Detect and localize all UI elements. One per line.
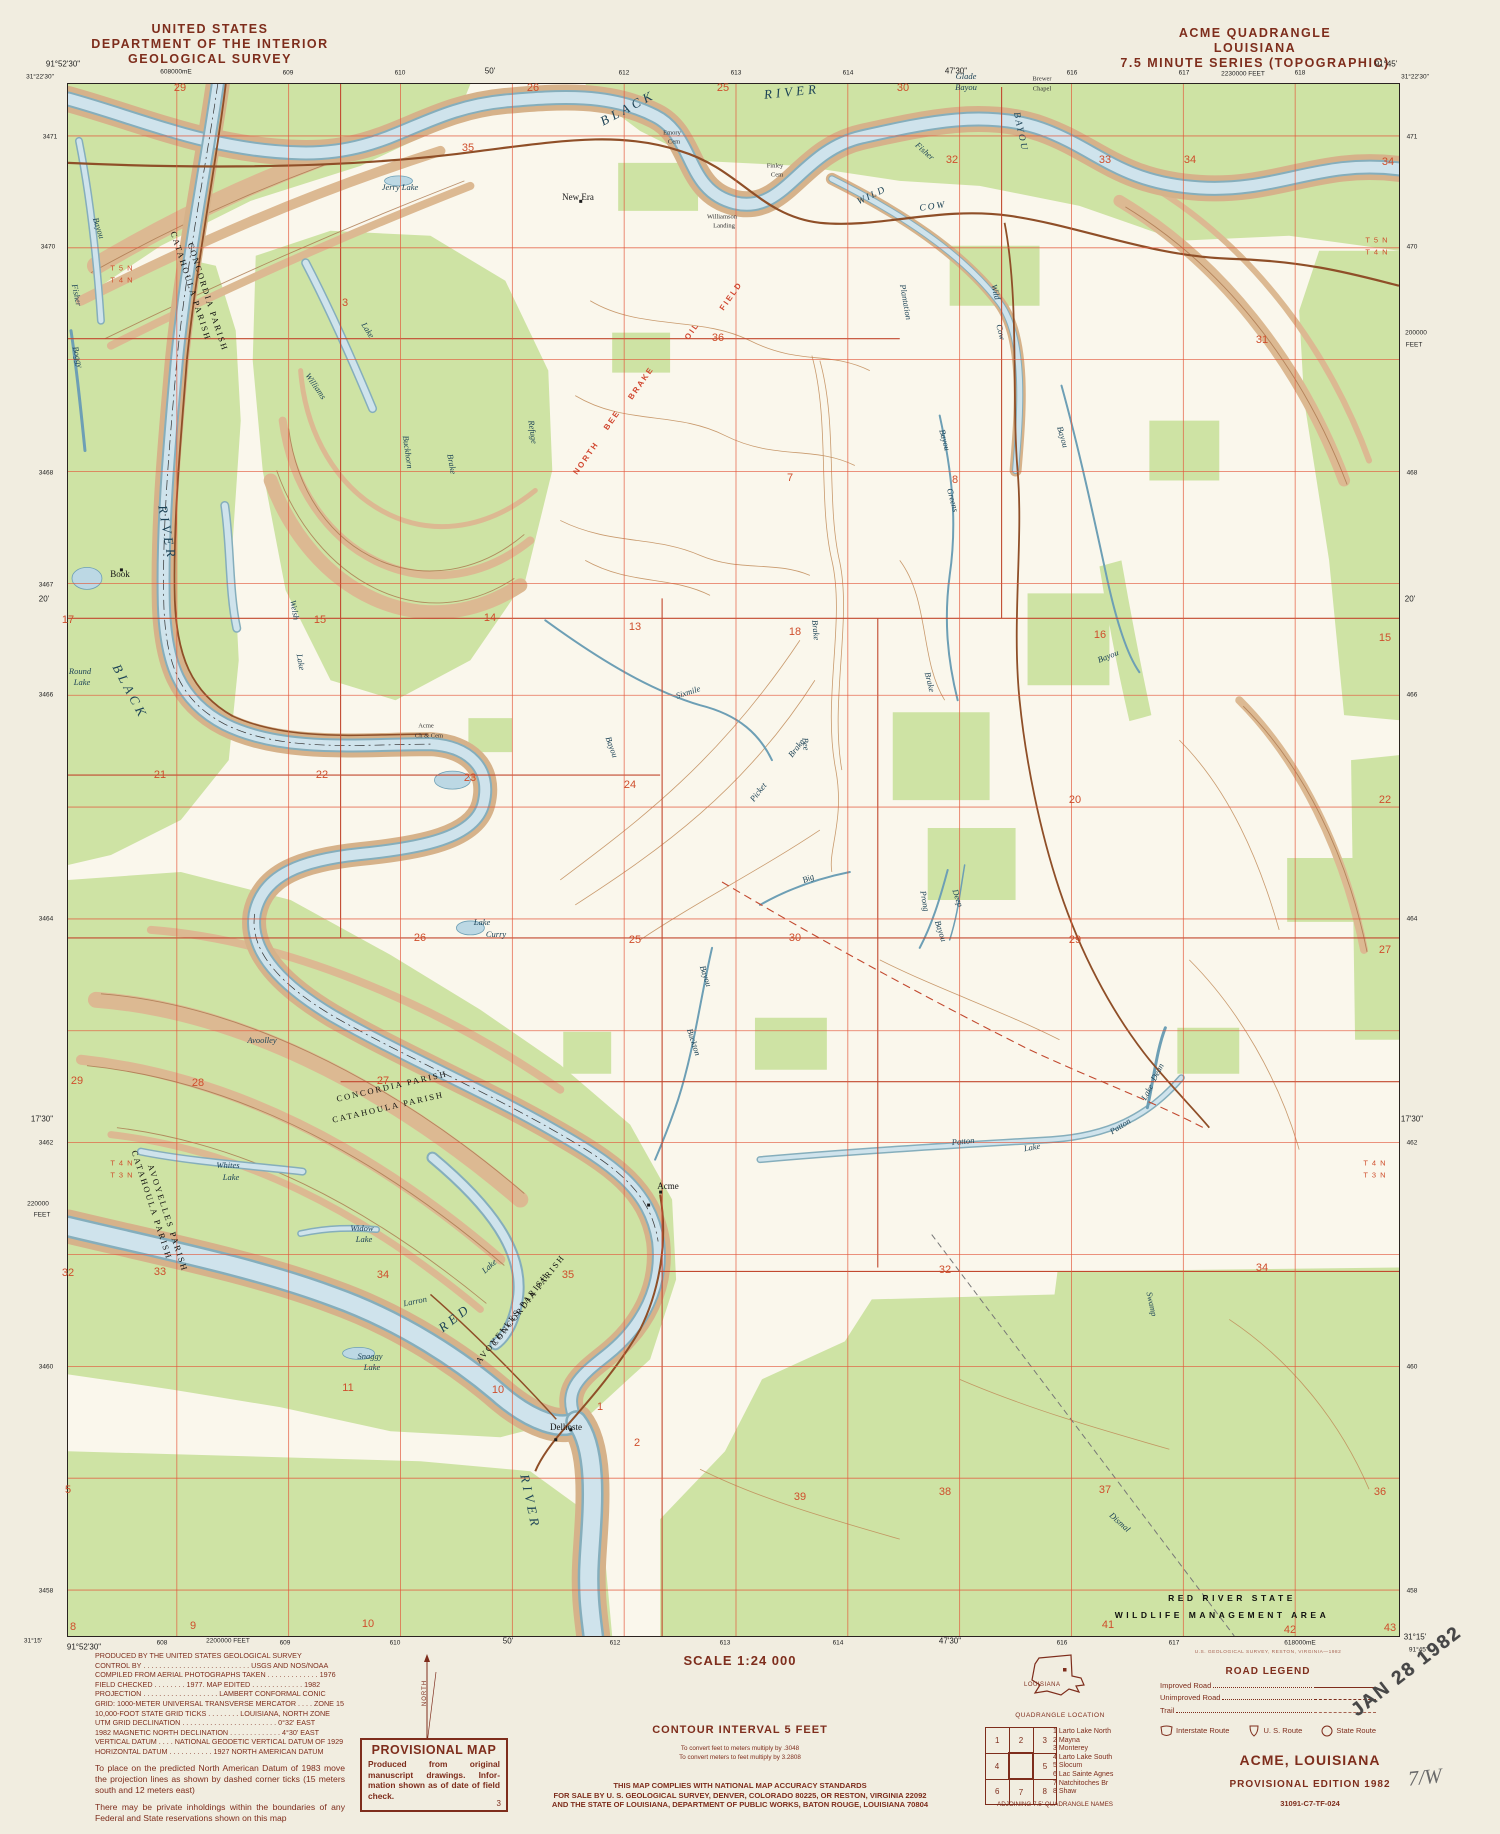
road-type-label: Unimproved Road xyxy=(1160,1693,1220,1702)
agency-header: UNITED STATES DEPARTMENT OF THE INTERIOR… xyxy=(60,22,360,67)
map-label: 17'30" xyxy=(1401,1115,1423,1124)
map-label: 610 xyxy=(395,70,406,77)
north-label: NORTH xyxy=(422,1680,428,1706)
provisional-title: PROVISIONAL MAP xyxy=(368,1743,500,1757)
map-label: 31°22'30" xyxy=(1401,74,1429,81)
map-label: Glade xyxy=(956,71,977,81)
text-line: 8 Shaw xyxy=(1053,1788,1173,1797)
quad-location-dot xyxy=(1063,1668,1067,1672)
conversion-note: To convert feet to meters multiply by .3… xyxy=(440,1745,1040,1752)
text-line: PROJECTION . . . . . . . . . . . . . . .… xyxy=(95,1689,345,1699)
map-label: 608 xyxy=(157,1640,168,1647)
provisional-body: Produced from original manuscript drawin… xyxy=(368,1759,500,1801)
map-label: 613 xyxy=(731,70,742,77)
map-label: 618000mE xyxy=(1284,1640,1315,1647)
adjoining-names: 1 Larto Lake North2 Mayna3 Monterey4 Lar… xyxy=(1053,1728,1173,1797)
agency-line: DEPARTMENT OF THE INTERIOR xyxy=(60,37,360,52)
text-line: 1 Larto Lake North xyxy=(1053,1728,1173,1737)
topo-map: .grn{fill:#cee3a4;stroke:none} .tan{fill… xyxy=(67,83,1400,1637)
road-legend: U.S. GEOLOGICAL SURVEY, RESTON, VIRGINIA… xyxy=(1160,1650,1376,1737)
map-label: 3464 xyxy=(39,916,53,923)
map-label: 3462 xyxy=(39,1140,53,1147)
map-label: 50' xyxy=(503,1637,513,1646)
map-label: 608000mE xyxy=(160,69,191,76)
map-label: 470 xyxy=(1407,244,1418,251)
text-line: 10,000-FOOT STATE GRID TICKS . . . . . .… xyxy=(95,1709,345,1719)
map-label: 3470 xyxy=(41,244,55,251)
agency-line: UNITED STATES xyxy=(60,22,360,37)
accuracy-note: THIS MAP COMPLIES WITH NATIONAL MAP ACCU… xyxy=(440,1781,1040,1790)
route-label: Interstate Route xyxy=(1176,1726,1229,1735)
map-label: 610 xyxy=(390,1640,401,1647)
provisional-map-box: PROVISIONAL MAP Produced from original m… xyxy=(360,1738,508,1812)
map-graphic: .grn{fill:#cee3a4;stroke:none} .tan{fill… xyxy=(68,84,1399,1636)
print-attribution: U.S. GEOLOGICAL SURVEY, RESTON, VIRGINIA… xyxy=(1160,1650,1376,1655)
map-label: 31°15' xyxy=(1404,1633,1427,1642)
text-line: VERTICAL DATUM . . . . NATIONAL GEODETIC… xyxy=(95,1737,345,1747)
us-route-shield-icon xyxy=(1248,1725,1260,1737)
agency-line: GEOLOGICAL SURVEY xyxy=(60,52,360,67)
text-line: 1982 MAGNETIC NORTH DECLINATION . . . . … xyxy=(95,1728,345,1738)
text-line: PRODUCED BY THE UNITED STATES GEOLOGICAL… xyxy=(95,1651,345,1661)
page-number: 3 xyxy=(497,1799,501,1808)
map-label: 3466 xyxy=(39,692,53,699)
text-line: UTM GRID DECLINATION . . . . . . . . . .… xyxy=(95,1718,345,1728)
map-label: 3458 xyxy=(39,1588,53,1595)
credit-lines: PRODUCED BY THE UNITED STATES GEOLOGICAL… xyxy=(95,1651,345,1757)
adjoin-cell-center xyxy=(1009,1753,1033,1779)
text-line: 5 Slocum xyxy=(1053,1762,1173,1771)
adjoining-caption: ADJOINING 7.5' QUADRANGLE NAMES xyxy=(965,1801,1145,1808)
adjoining-quads: 123 45 678 1 Larto Lake North2 Mayna3 Mo… xyxy=(985,1727,1057,1805)
map-label: 31°15' xyxy=(24,1638,42,1645)
route-label: State Route xyxy=(1336,1726,1376,1735)
quad-title: ACME QUADRANGLE xyxy=(1070,26,1440,41)
text-line: GRID: 1000-METER UNIVERSAL TRANSVERSE ME… xyxy=(95,1699,345,1709)
map-label: Brewer xyxy=(1032,76,1051,83)
map-label: 612 xyxy=(610,1640,621,1647)
map-label: 3460 xyxy=(39,1364,53,1371)
text-line: 4 Larto Lake South xyxy=(1053,1754,1173,1763)
route-label: U. S. Route xyxy=(1263,1726,1302,1735)
road-type-label: Improved Road xyxy=(1160,1681,1211,1690)
map-label: 20' xyxy=(39,595,49,604)
map-label: 200000 xyxy=(1405,330,1427,337)
quadrangle-location: LOUISIANA QUADRANGLE LOCATION xyxy=(1010,1650,1110,1713)
production-credits: PRODUCED BY THE UNITED STATES GEOLOGICAL… xyxy=(95,1651,345,1824)
map-label: 2230000 FEET xyxy=(1221,71,1265,78)
map-label: 614 xyxy=(833,1640,844,1647)
map-label: 3467 xyxy=(39,582,53,589)
state-name: LOUISIANA xyxy=(1024,1682,1061,1688)
quad-state: LOUISIANA xyxy=(1070,41,1440,56)
map-label: 613 xyxy=(720,1640,731,1647)
map-label: 31°22'30" xyxy=(26,74,54,81)
text-line: FIELD CHECKED . . . . . . . . 1977. MAP … xyxy=(95,1680,345,1690)
map-label: 462 xyxy=(1407,1140,1418,1147)
map-label: 20' xyxy=(1405,595,1415,604)
map-label: FEET xyxy=(1406,342,1423,349)
map-label: 47'30" xyxy=(939,1637,961,1646)
map-label: 17'30" xyxy=(31,1115,53,1124)
map-label: 612 xyxy=(619,70,630,77)
datum-note: To place on the predicted North American… xyxy=(95,1763,345,1796)
conversion-note: To convert meters to feet multiply by 3.… xyxy=(440,1754,1040,1761)
improved-road-sample xyxy=(1314,1687,1376,1688)
road-type-label: Trail xyxy=(1160,1706,1174,1715)
contour-interval: CONTOUR INTERVAL 5 FEET xyxy=(440,1724,1040,1736)
map-label: 468 xyxy=(1407,470,1418,477)
adjoin-cell: 4 xyxy=(986,1753,1010,1779)
map-label: 609 xyxy=(283,70,294,77)
map-label: 2200000 FEET xyxy=(206,1638,250,1645)
state-route-circle-icon xyxy=(1321,1725,1333,1737)
sale-note: AND THE STATE OF LOUISIANA, DEPARTMENT O… xyxy=(440,1800,1040,1809)
map-label: 617 xyxy=(1169,1640,1180,1647)
adjoin-cell: 2 xyxy=(1009,1728,1033,1754)
louisiana-outline xyxy=(1027,1650,1097,1708)
text-line: HORIZONTAL DATUM . . . . . . . . . . . 1… xyxy=(95,1747,345,1757)
map-label: 614 xyxy=(843,70,854,77)
adjoin-cell: 1 xyxy=(986,1728,1010,1754)
text-line: 2 Mayna xyxy=(1053,1737,1173,1746)
text-line: 7 Natchitoches Br xyxy=(1053,1780,1173,1789)
road-legend-title: ROAD LEGEND xyxy=(1160,1666,1376,1677)
map-label: 464 xyxy=(1407,916,1418,923)
text-line: 6 Lac Sainte Agnes xyxy=(1053,1771,1173,1780)
adjoining-grid: 123 45 678 xyxy=(985,1727,1057,1805)
scale-title: SCALE 1:24 000 xyxy=(440,1653,1040,1668)
quadrangle-header: ACME QUADRANGLE LOUISIANA 7.5 MINUTE SER… xyxy=(1070,26,1440,71)
map-label: 458 xyxy=(1407,1588,1418,1595)
handwritten-initials: 7/W xyxy=(1407,1763,1443,1791)
map-label: 3471 xyxy=(43,134,57,141)
text-line: 3 Monterey xyxy=(1053,1745,1173,1754)
quad-series: 7.5 MINUTE SERIES (TOPOGRAPHIC) xyxy=(1070,56,1440,71)
map-label: 460 xyxy=(1407,1364,1418,1371)
interstate-shield-icon xyxy=(1160,1725,1173,1737)
map-label: 609 xyxy=(280,1640,291,1647)
map-label: 47'30" xyxy=(945,67,967,76)
inholdings-note: There may be private inholdings within t… xyxy=(95,1802,345,1824)
sale-note: FOR SALE BY U. S. GEOLOGICAL SURVEY, DEN… xyxy=(440,1791,1040,1800)
text-line: CONTROL BY . . . . . . . . . . . . . . .… xyxy=(95,1661,345,1671)
sheet-number: 31091-C7-TF-024 xyxy=(1160,1799,1460,1808)
map-label: 616 xyxy=(1057,1640,1068,1647)
map-label: 471 xyxy=(1407,134,1418,141)
map-label: 220000 xyxy=(27,1201,49,1208)
text-line: COMPILED FROM AERIAL PHOTOGRAPHS TAKEN .… xyxy=(95,1670,345,1680)
map-label: 3468 xyxy=(39,470,53,477)
map-label: FEET xyxy=(34,1212,51,1219)
map-label: 466 xyxy=(1407,692,1418,699)
quad-location-caption: QUADRANGLE LOCATION xyxy=(1000,1712,1120,1719)
usgs-topo-sheet: UNITED STATES DEPARTMENT OF THE INTERIOR… xyxy=(0,0,1500,1834)
map-label: 50' xyxy=(485,67,495,76)
